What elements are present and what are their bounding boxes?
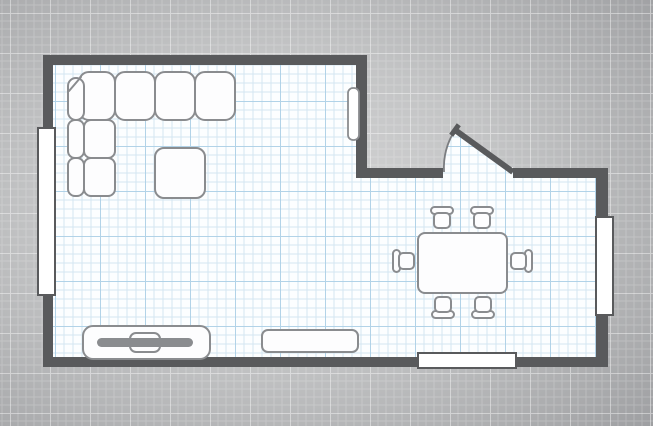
chair-seat — [511, 253, 526, 269]
tv-unit[interactable] — [83, 326, 210, 359]
dining-chair-top-2[interactable] — [471, 207, 493, 228]
sofa-cushion — [84, 158, 115, 196]
window-left[interactable] — [38, 128, 55, 295]
radiator[interactable] — [348, 88, 359, 140]
wall-top[interactable] — [43, 55, 367, 65]
dining-chair-right[interactable] — [511, 250, 532, 272]
sofa-cushion — [68, 120, 84, 158]
sofa-cushion — [195, 72, 235, 120]
coffee-table[interactable] — [155, 148, 205, 198]
sofa-cushion — [115, 72, 155, 120]
sideboard[interactable] — [262, 330, 358, 352]
sofa-cushion — [155, 72, 195, 120]
floorplan-stage — [0, 0, 653, 426]
chair-seat — [475, 297, 491, 312]
dining-chair-left[interactable] — [393, 250, 414, 272]
tv-screen — [97, 338, 193, 347]
window-bottom[interactable] — [418, 353, 516, 368]
wall-hall-left[interactable] — [356, 168, 443, 178]
dining-chair-bottom-1[interactable] — [432, 297, 454, 318]
floorplan-svg — [0, 0, 653, 426]
sofa-cushion — [68, 158, 84, 196]
window-right[interactable] — [596, 217, 613, 315]
dining-chair-top-1[interactable] — [431, 207, 453, 228]
dining-chair-bottom-2[interactable] — [472, 297, 494, 318]
sofa-cushion — [84, 120, 115, 158]
chair-seat — [474, 213, 490, 228]
chair-seat — [399, 253, 414, 269]
chair-seat — [435, 297, 451, 312]
dining-table[interactable] — [418, 233, 507, 293]
chair-seat — [434, 213, 450, 228]
wall-hall-right[interactable] — [513, 168, 608, 178]
